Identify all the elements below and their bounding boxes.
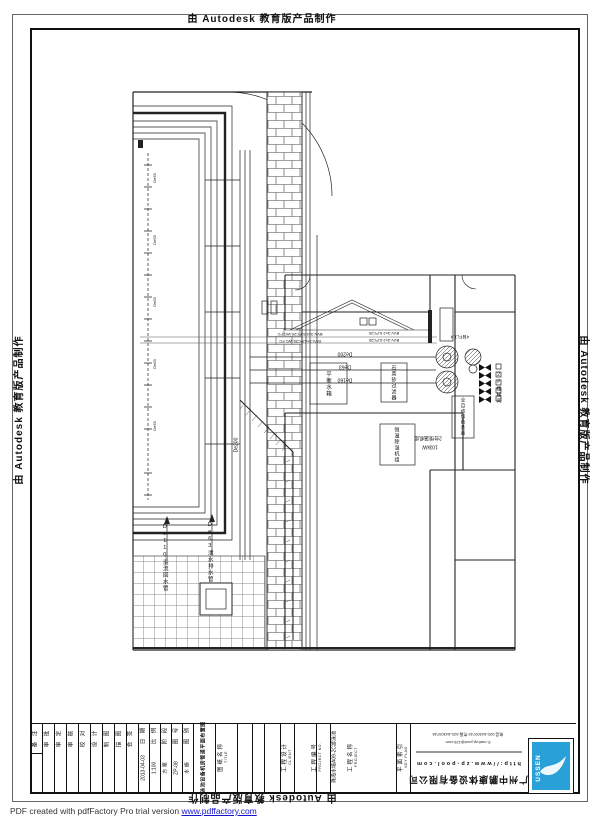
client-label-en: CLIENT [288, 742, 292, 772]
pipe-label-de200: De200 [338, 351, 353, 356]
company-url: http://www.zp-pool.com [415, 759, 521, 765]
deck-grid [133, 556, 265, 648]
company-divider [416, 751, 522, 753]
project-label-en: PROJECT [354, 742, 358, 772]
company-name: 广州中鹏康体设备有限公司 [408, 775, 528, 784]
field-dwgno-label: 图 号 [174, 726, 180, 745]
field-category-label: 图 别 [185, 726, 191, 745]
pump-symbols [436, 346, 481, 393]
deck-drain [200, 583, 232, 615]
inlet-label-de63: De63 [153, 297, 157, 307]
sig-col-trace: 描 图 [117, 729, 123, 748]
sig-col-draw: 制 图 [105, 729, 111, 748]
label-balance-tank: 平衡水箱 [324, 371, 332, 397]
pdf-page: 由 Autodesk 教育版产品制作 由 Autodesk 教育版产品制作 由 … [0, 0, 600, 828]
field-date-value: 2013-04-03 [141, 755, 146, 781]
label-stair: 2#楼梯间 [496, 372, 501, 404]
field-stage-label: 阶 段 [163, 726, 169, 745]
pipe-label-de63: De63 [339, 364, 351, 369]
drawing-title: 泳池设备机房管道平面布置图 [202, 721, 207, 793]
label-dosing-unit: 全自动加药装置 [460, 398, 466, 437]
sig-col-approve: 审 批 [45, 729, 51, 748]
title-label-zh: 图纸名称 [217, 742, 223, 772]
cable-label-c2: BVV-3×2.5-PC20 [369, 338, 400, 342]
field-dwgno-value: ZP-08 [174, 761, 179, 775]
cable-label-b: BVV-3×4-PC25-WC.FC [279, 339, 321, 343]
field-scale-value: 1:100 [152, 762, 157, 775]
sig-col-check: 审 核 [69, 729, 75, 748]
label-pump-count: 4台FL1.4 [451, 334, 470, 339]
label-dehumidifier: 恒温除湿机组 [394, 427, 401, 463]
field-category-value: 水 施 [186, 762, 191, 773]
pipe-label-de160: De160 [338, 377, 353, 382]
sig-col-countersign: 会 签 [128, 729, 134, 748]
field-scale-label: 比 例 [152, 726, 158, 745]
logo-text: USSEN [536, 754, 543, 781]
label-heatpump-count: 2台恒温机组 [414, 435, 442, 440]
drawing-linework [0, 0, 600, 828]
leader-label-drain: De63泄水排水管 [206, 522, 212, 583]
pool-inlet-line [144, 153, 152, 500]
cable-label-a: BVV-3×2.5-PC20-WC.FC [277, 332, 322, 336]
pdf-note: PDF created with pdfFactory Pro trial ve… [10, 806, 257, 816]
inlet-label-de63: De63 [153, 173, 157, 183]
inlet-label-de63: De63 [153, 421, 157, 431]
company-contact-line2: E-mail:zp-pool@126.com [446, 740, 491, 744]
brick-wall [267, 92, 317, 650]
pdf-note-link[interactable]: www.pdffactory.com [181, 806, 256, 816]
riser-label-de200: De200 [235, 438, 240, 453]
sig-col-design: 设 计 [93, 729, 99, 748]
sig-col-authorize: 审 定 [57, 729, 63, 748]
company-logo: USSEN [528, 738, 574, 794]
label-sand-filter: 石英砂过滤器 [391, 365, 398, 401]
label-heatpump-power: 103kW [422, 444, 438, 449]
riser-pipes [205, 150, 250, 560]
field-stage-value: 方 案 [163, 762, 168, 773]
pdf-note-text: PDF created with pdfFactory Pro trial ve… [10, 806, 181, 816]
logo-blue-square: USSEN [532, 742, 570, 790]
cable-label-c: BVV-3×2.5-PC20 [369, 331, 400, 335]
pool-fitting-symbol [138, 140, 143, 148]
roof-lines [285, 300, 430, 330]
projectno-label-en: PROJECT NO. [318, 742, 322, 772]
title-label-en: TITLE [224, 742, 228, 772]
door-arcs [295, 275, 476, 290]
company-contact-line1: 电话:020-84309749 传真:020-84309748 [433, 732, 504, 736]
inlet-label-de63: De63 [153, 235, 157, 245]
keyplan-label-en: KEY PLAN [404, 742, 408, 772]
inlet-label-de63: De63 [153, 359, 157, 369]
sig-col-remark: 备 注 [33, 729, 39, 748]
project-name: 珠海水境A09-2C游泳池 [333, 731, 338, 783]
leader-label-overflow: De110溢流回水管 [161, 524, 167, 592]
sig-col-proof: 校 对 [81, 729, 87, 748]
field-date-label: 日 期 [141, 726, 147, 745]
